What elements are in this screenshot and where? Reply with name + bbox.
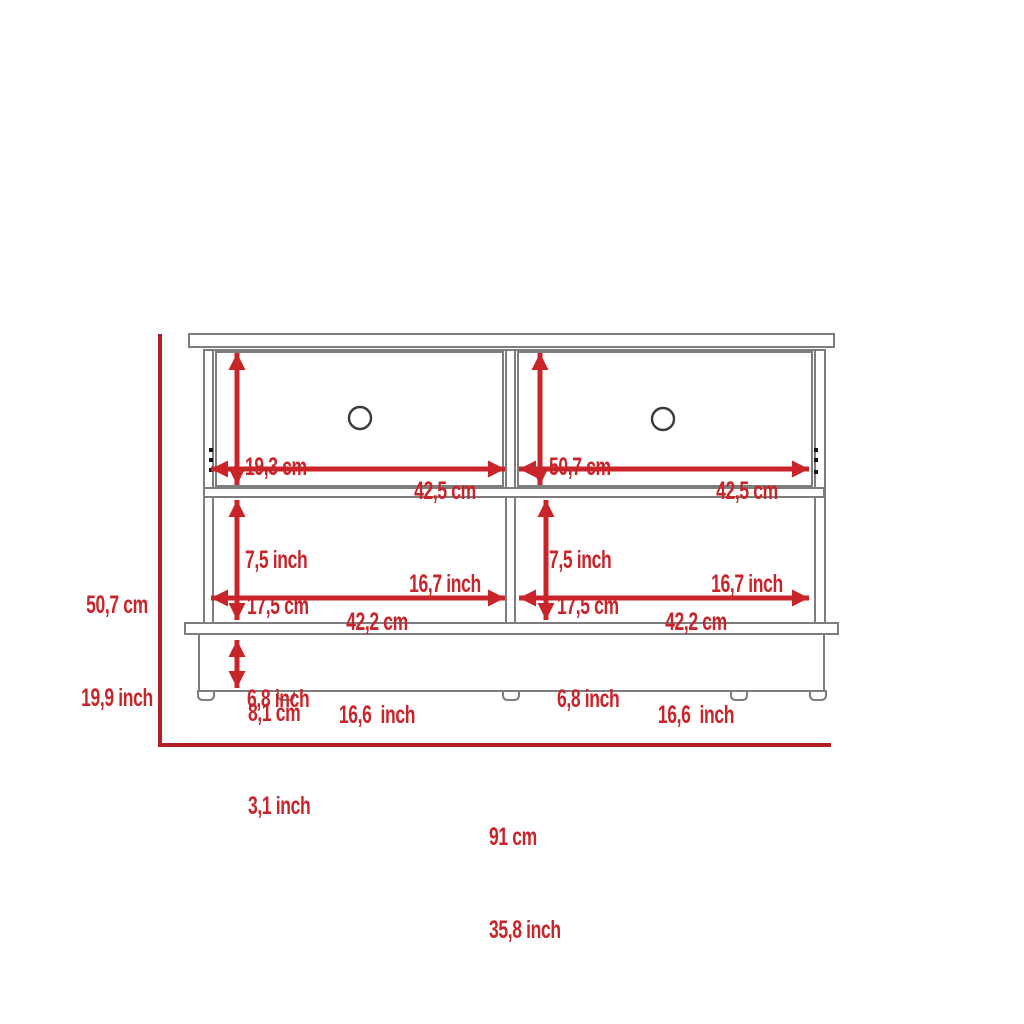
foot (503, 691, 519, 700)
inch-value: 16,6 inch (300, 700, 454, 731)
shelf-right-height-label: 17,5 cm 6,8 inch (557, 529, 619, 777)
shelf-left-width-label: 42,2 cm 16,6 inch (300, 545, 454, 793)
furniture-dimension-diagram: 50,7 cm 19,9 inch 91 cm 35,8 inch 19,3 c… (0, 0, 1024, 1024)
cm-value: 42,5 cm (670, 476, 824, 507)
cm-value: 42,2 cm (300, 607, 454, 638)
cm-value: 42,2 cm (619, 607, 773, 638)
foot (810, 691, 826, 700)
shelf-right-width-label: 42,2 cm 16,6 inch (619, 545, 773, 793)
cm-value: 91 cm (489, 822, 561, 853)
inch-value: 3,1 inch (248, 791, 310, 822)
cm-value: 17,5 cm (557, 591, 619, 622)
overall-height-label: 50,7 cm 19,9 inch (40, 528, 194, 776)
cm-value: 50,7 cm (40, 590, 194, 621)
inch-value: 35,8 inch (489, 915, 561, 946)
foot (198, 691, 214, 700)
cm-value: 42,5 cm (368, 476, 522, 507)
top-board (189, 334, 834, 347)
inch-value: 19,9 inch (40, 683, 194, 714)
cm-value: 8,1 cm (248, 698, 310, 729)
overall-width-label: 91 cm 35,8 inch (489, 760, 561, 1008)
inch-value: 16,6 inch (619, 700, 773, 731)
cm-value: 50,7 cm (549, 452, 611, 483)
left-side-panel (204, 350, 213, 623)
cm-value: 19,3 cm (245, 452, 307, 483)
inch-value: 6,8 inch (557, 684, 619, 715)
base-height-label: 8,1 cm 3,1 inch (248, 636, 310, 884)
